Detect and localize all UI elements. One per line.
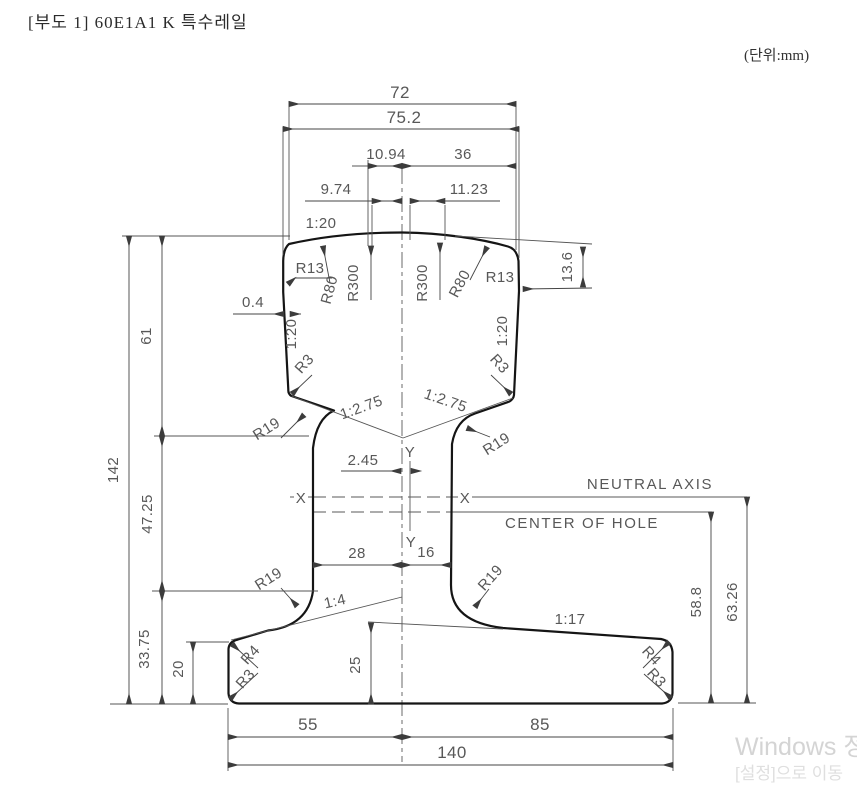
r4-left-label: R4 bbox=[238, 642, 264, 668]
svg-text:58.8: 58.8 bbox=[688, 587, 705, 618]
slope-1-20-left-label: 1:20 bbox=[283, 319, 300, 350]
watermark-line2: [설정]으로 이동 bbox=[735, 763, 857, 785]
dim-75-2: 75.2 bbox=[283, 108, 519, 129]
svg-text:1:20: 1:20 bbox=[306, 215, 337, 232]
r300-left-label: R300 bbox=[345, 264, 362, 301]
slope-1-2-75-left-label: 1:2.75 bbox=[338, 392, 385, 423]
dim-63-26: 63.26 bbox=[724, 497, 747, 703]
slope-1-17-label: 1:17 bbox=[555, 611, 586, 628]
dim-140: 140 bbox=[228, 743, 673, 765]
r19-head-left-label: R19 bbox=[250, 414, 283, 444]
r3-left-label: R3 bbox=[292, 351, 318, 377]
svg-text:47.25: 47.25 bbox=[139, 494, 156, 534]
slope-1-2-75-right-label: 1:2.75 bbox=[422, 386, 469, 416]
slope-1-4-label: 1:4 bbox=[322, 591, 347, 613]
dim-61: 61 bbox=[138, 236, 162, 436]
r3-left-foot-label: R3 bbox=[233, 666, 259, 692]
svg-text:55: 55 bbox=[298, 715, 318, 734]
svg-text:140: 140 bbox=[437, 743, 467, 762]
r19-foot-left-label: R19 bbox=[252, 564, 285, 594]
svg-text:25: 25 bbox=[347, 656, 364, 674]
r4-right-label: R4 bbox=[638, 643, 664, 669]
x-axis-label-left: X bbox=[296, 490, 306, 507]
svg-text:36: 36 bbox=[454, 146, 472, 163]
dim-55-and-85: 55 85 bbox=[228, 715, 673, 737]
dim-25: 25 bbox=[347, 623, 371, 704]
rail-cross-section-drawing: X X Y Y NEUTRAL AXIS CENTER OF HOLE bbox=[0, 0, 857, 802]
svg-text:20: 20 bbox=[170, 660, 187, 678]
svg-text:11.23: 11.23 bbox=[450, 181, 488, 198]
r19-foot-right-label: R19 bbox=[475, 562, 507, 595]
rail-profile-outline bbox=[229, 233, 673, 704]
r19-head-right-label: R19 bbox=[480, 429, 513, 459]
svg-text:63.26: 63.26 bbox=[724, 582, 741, 622]
y-axis-label-top: Y bbox=[405, 444, 415, 461]
svg-text:72: 72 bbox=[390, 83, 410, 102]
drawing-page: [부도 1] 60E1A1 K 특수레일 (단위:mm) X X Y Y NEU… bbox=[0, 0, 857, 802]
dim-72: 72 bbox=[289, 83, 516, 104]
r3-right-label: R3 bbox=[486, 351, 512, 377]
dim-142: 142 bbox=[105, 236, 129, 704]
dim-0-4: 0.4 bbox=[233, 294, 301, 314]
r80-left-label: R80 bbox=[318, 274, 342, 306]
x-axis-label-right: X bbox=[460, 490, 470, 507]
r300-right-label: R300 bbox=[414, 264, 431, 301]
slope-1-20-top-label: 1:20 bbox=[306, 215, 337, 232]
watermark-line1: Windows 정 bbox=[735, 731, 857, 763]
windows-activation-watermark: Windows 정 [설정]으로 이동 bbox=[735, 731, 857, 785]
dim-58-8: 58.8 bbox=[688, 512, 711, 703]
radius-leaders-head: R13 R80 R300 R300 R80 R13 bbox=[288, 243, 592, 306]
r3-right-foot-label: R3 bbox=[643, 665, 669, 691]
dim-10-94-and-36: 10.94 36 bbox=[352, 146, 516, 166]
svg-text:75.2: 75.2 bbox=[387, 108, 422, 127]
r13-left-label: R13 bbox=[296, 260, 325, 277]
svg-text:9.74: 9.74 bbox=[321, 181, 352, 198]
dim-47-25: 47.25 bbox=[139, 436, 162, 591]
dim-20: 20 bbox=[170, 642, 193, 704]
neutral-axis-label: NEUTRAL AXIS bbox=[587, 476, 713, 493]
svg-text:85: 85 bbox=[530, 715, 550, 734]
dim-28-and-16: 28 16 bbox=[313, 544, 451, 565]
svg-text:61: 61 bbox=[138, 327, 155, 345]
y-axis-label-bottom: Y bbox=[406, 534, 416, 551]
svg-text:13.6: 13.6 bbox=[559, 252, 576, 283]
center-of-hole-label: CENTER OF HOLE bbox=[505, 515, 659, 532]
r80-right-label: R80 bbox=[446, 267, 474, 300]
slope-1-4-line bbox=[231, 597, 402, 640]
slope-1-20-right-label: 1:20 bbox=[494, 316, 511, 347]
svg-text:33.75: 33.75 bbox=[136, 629, 153, 669]
head-underside-labels: 1:2.75 1:2.75 R19 R19 bbox=[250, 386, 513, 459]
head-side-labels: 1:20 1:20 R3 R3 bbox=[283, 316, 512, 394]
web-foot-fillet-labels: R19 R19 1:4 1:17 bbox=[252, 562, 585, 628]
svg-text:2.45: 2.45 bbox=[348, 452, 379, 469]
dim-13-6: 13.6 bbox=[559, 247, 583, 287]
foot-corner-labels: R4 R3 R4 R3 bbox=[230, 642, 671, 699]
svg-text:0.4: 0.4 bbox=[242, 294, 264, 311]
svg-text:16: 16 bbox=[417, 544, 435, 561]
dim-33-75: 33.75 bbox=[136, 591, 162, 704]
r13-right-label: R13 bbox=[486, 269, 515, 286]
dim-9-74-and-11-23: 9.74 11.23 bbox=[305, 181, 500, 201]
svg-text:142: 142 bbox=[105, 457, 122, 483]
svg-text:10.94: 10.94 bbox=[366, 146, 406, 163]
svg-text:28: 28 bbox=[348, 545, 366, 562]
